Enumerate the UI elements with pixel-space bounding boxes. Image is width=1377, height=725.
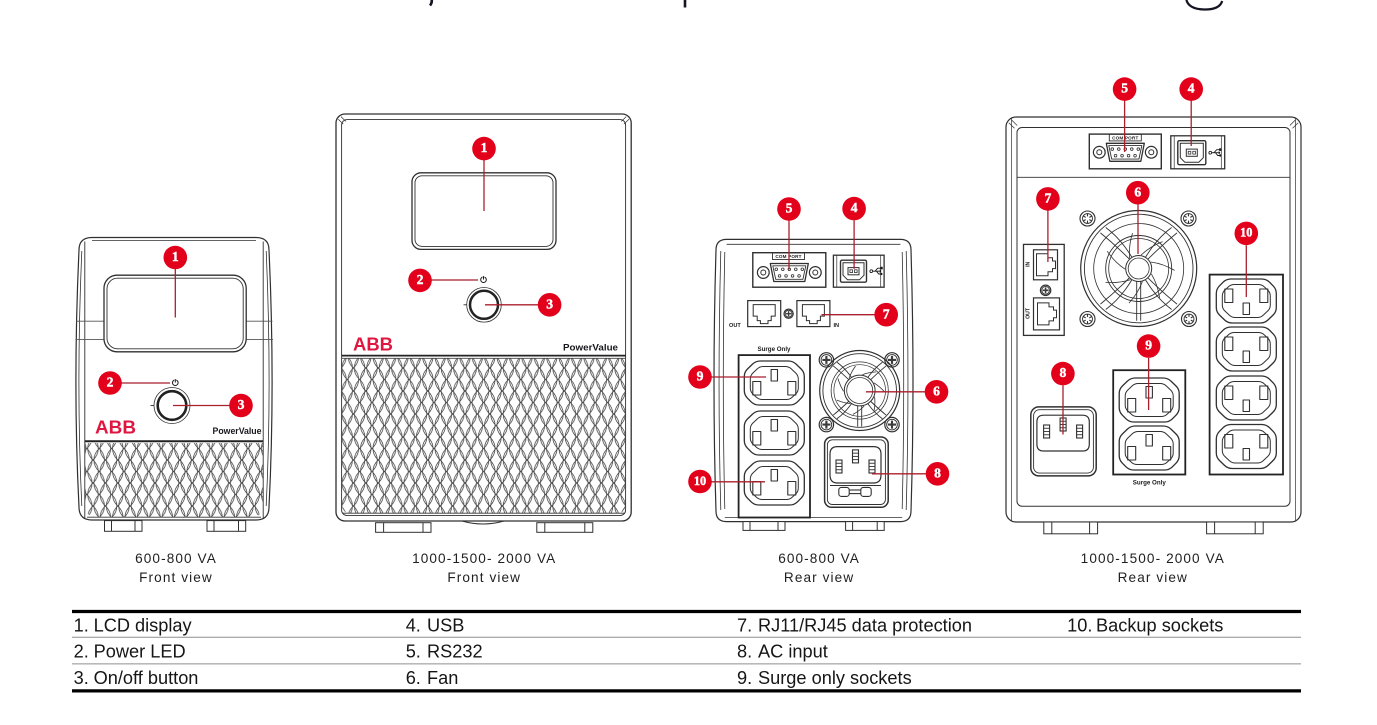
svg-text:10.: 10.	[1067, 615, 1092, 635]
svg-text:ABB: ABB	[353, 334, 393, 355]
svg-text:1: 1	[481, 140, 488, 155]
svg-text:3: 3	[546, 296, 553, 311]
svg-text:IN: IN	[1026, 261, 1032, 266]
svg-text:6: 6	[1134, 184, 1141, 199]
svg-text:6: 6	[933, 383, 940, 398]
svg-text:7.: 7.	[737, 615, 752, 635]
svg-text:4.: 4.	[406, 615, 421, 635]
svg-text:3.: 3.	[74, 668, 89, 688]
svg-text:Surge Only: Surge Only	[757, 346, 791, 353]
svg-text:Rear view: Rear view	[784, 570, 854, 585]
svg-text:8: 8	[934, 465, 941, 480]
svg-text:4: 4	[1188, 81, 1195, 96]
svg-text:9: 9	[697, 369, 704, 384]
svg-text:Backup sockets: Backup sockets	[1096, 615, 1223, 635]
svg-text:LCD display: LCD display	[94, 615, 193, 635]
svg-text:RS232: RS232	[427, 642, 483, 662]
svg-text:7: 7	[883, 306, 890, 321]
svg-text:PowerValue: PowerValue	[563, 343, 618, 353]
svg-text:9: 9	[1145, 338, 1152, 353]
svg-text:4: 4	[851, 200, 858, 215]
svg-text:Rear view: Rear view	[1118, 570, 1188, 585]
svg-text:600-800 VA: 600-800 VA	[778, 551, 860, 566]
svg-text:Front view: Front view	[447, 570, 521, 585]
svg-text:3: 3	[238, 397, 245, 412]
svg-text:10: 10	[1240, 226, 1252, 240]
svg-text:5.: 5.	[406, 642, 421, 662]
svg-text:8: 8	[1060, 365, 1067, 380]
svg-text:8.: 8.	[737, 642, 752, 662]
svg-text:On/off button: On/off button	[94, 668, 199, 688]
svg-text:OUT: OUT	[1026, 307, 1032, 319]
svg-text:600-800 VA: 600-800 VA	[135, 551, 217, 566]
svg-text:AC input: AC input	[758, 642, 828, 662]
svg-text:1000-1500- 2000 VA: 1000-1500- 2000 VA	[1081, 551, 1225, 566]
svg-text:9.: 9.	[737, 668, 752, 688]
svg-text:Fan: Fan	[427, 668, 458, 688]
svg-text:PowerValue: PowerValue	[213, 426, 262, 436]
svg-text:IN: IN	[834, 323, 840, 329]
svg-text:2: 2	[417, 272, 424, 287]
svg-text:6.: 6.	[406, 668, 421, 688]
svg-text:COM PORT: COM PORT	[1112, 135, 1138, 140]
svg-text:USB: USB	[427, 615, 464, 635]
svg-text:1: 1	[172, 249, 179, 264]
svg-text:Surge Only: Surge Only	[1133, 479, 1167, 486]
svg-text:Surge only sockets: Surge only sockets	[758, 668, 912, 688]
svg-text:1000-1500- 2000 VA: 1000-1500- 2000 VA	[412, 551, 556, 566]
svg-text:2.: 2.	[74, 642, 89, 662]
svg-text:RJ11/RJ45 data protection: RJ11/RJ45 data protection	[758, 615, 972, 635]
svg-text:OUT: OUT	[729, 323, 741, 329]
svg-text:10: 10	[694, 474, 706, 488]
svg-text:2: 2	[107, 375, 114, 390]
svg-text:ABB: ABB	[95, 417, 136, 438]
svg-text:Front view: Front view	[139, 570, 213, 585]
svg-text:7: 7	[1045, 191, 1052, 206]
svg-text:5: 5	[786, 201, 793, 216]
svg-text:5: 5	[1121, 81, 1128, 96]
svg-text:Power LED: Power LED	[94, 642, 186, 662]
svg-text:1.: 1.	[74, 615, 89, 635]
